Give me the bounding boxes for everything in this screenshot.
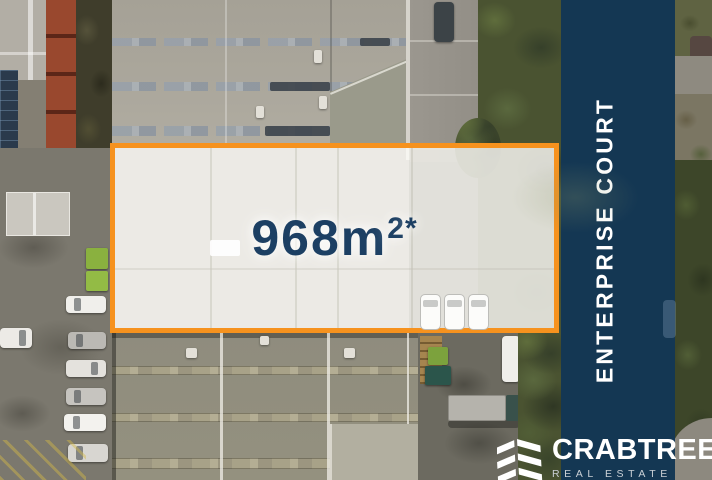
brand-logo: CRABTREES REAL ESTATE: [497, 437, 712, 480]
parked-car: [64, 414, 106, 431]
area-superscript: 2: [387, 212, 405, 245]
yellow-hatch-markings: [0, 440, 86, 480]
green-skip-bin: [86, 271, 108, 291]
faint-roof-seam: [210, 148, 212, 328]
vegetation-strip: [76, 0, 112, 152]
roof-vent: [319, 96, 327, 109]
small-white-rooftop: [6, 192, 70, 236]
light-roof-panel: [330, 424, 418, 480]
roof-vent: [344, 348, 355, 358]
roof-vent: [256, 106, 264, 118]
stacked-chevrons-icon: [497, 437, 543, 480]
area-value: 968m: [251, 210, 387, 266]
parked-suv: [434, 2, 454, 42]
roof-seam: [220, 333, 223, 480]
roof-vent: [260, 336, 269, 345]
parked-car: [66, 360, 106, 377]
faint-tree-shadow: [490, 150, 660, 245]
roof-skylight-dark-panel: [265, 126, 330, 136]
verge-bushes: [675, 160, 712, 460]
parked-car: [66, 388, 106, 405]
roof-skylight-dark-panel: [270, 82, 330, 91]
parked-car: [66, 296, 106, 313]
teal-container: [425, 366, 451, 385]
area-asterisk: *: [405, 212, 418, 245]
parked-ute: [0, 328, 32, 348]
property-boundary-overlay: 968m2*: [110, 143, 559, 333]
roof-skylight-strip: [112, 366, 418, 375]
crossover-driveway: [675, 56, 712, 94]
truck-trailer: [448, 395, 506, 421]
parked-car: [68, 332, 106, 349]
roof-edge-shadow: [112, 333, 116, 480]
roof-vent: [314, 50, 322, 63]
green-bin: [428, 347, 448, 365]
roof-skylight-strip: [112, 413, 418, 422]
parking-bay-line: [410, 94, 482, 96]
area-label: 968m2*: [251, 213, 417, 263]
green-skip-bin: [86, 248, 108, 269]
parked-car-faint: [468, 294, 489, 330]
brand-text: CRABTREES REAL ESTATE: [552, 437, 712, 480]
roof-marking: [210, 240, 240, 256]
car-under-overlay: [663, 300, 676, 338]
parked-car-faint: [420, 294, 441, 330]
truck-shadow: [448, 420, 520, 428]
brand-tagline: REAL ESTATE: [552, 468, 712, 480]
property-listing-image: ENTERPRISE COURT 968m2* CRABTREES REAL E…: [0, 0, 712, 480]
roof-vent: [186, 348, 197, 358]
roof-seam: [225, 0, 227, 143]
brand-name: CRABTREES: [552, 437, 712, 465]
parked-car-faint: [444, 294, 465, 330]
left-gray-roof: [0, 0, 50, 80]
roof-skylight-dark-panel: [360, 38, 390, 46]
